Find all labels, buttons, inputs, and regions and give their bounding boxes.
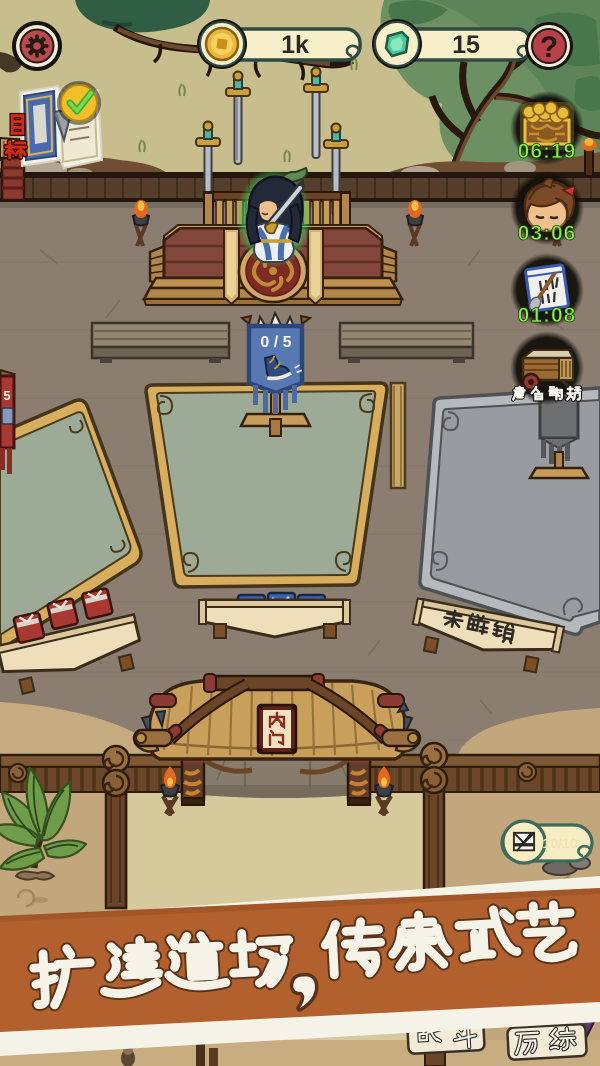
svg-text:?: ? [540, 31, 558, 64]
svg-text:0 / 5: 0 / 5 [260, 334, 291, 351]
svg-text:03:06: 03:06 [518, 222, 577, 245]
svg-text:15: 15 [452, 31, 480, 59]
svg-text:06:19: 06:19 [518, 140, 577, 163]
svg-text:01:08: 01:08 [518, 304, 577, 327]
svg-text:5: 5 [3, 388, 10, 403]
svg-text:1k: 1k [281, 31, 309, 59]
svg-text:10/10: 10/10 [542, 835, 577, 851]
